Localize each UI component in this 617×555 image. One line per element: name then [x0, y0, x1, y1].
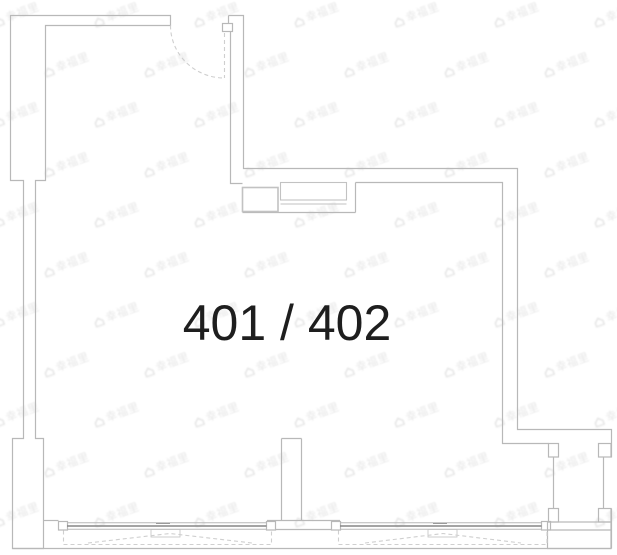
counter-box — [281, 183, 347, 201]
fixtures — [151, 183, 457, 538]
module-tab — [599, 509, 612, 523]
module-tab — [549, 509, 559, 523]
window-post — [332, 522, 341, 531]
window-post — [542, 522, 551, 531]
window-center-mark — [151, 530, 180, 538]
dashed-lines — [64, 26, 548, 545]
bay-opening-left — [88, 534, 252, 544]
window-post — [267, 522, 276, 531]
windows — [67, 523, 542, 530]
module-side-windows — [554, 458, 612, 549]
module-tab — [599, 444, 612, 458]
bay-opening-right — [365, 534, 521, 544]
left-wall — [11, 16, 171, 549]
bay-outline-left — [64, 531, 272, 545]
appliance-box — [243, 188, 279, 212]
floorplan-canvas: 幸福里幸福里幸福里幸福里幸福里幸福里幸福里幸福里幸福里幸福里幸福里幸福里幸福里幸… — [0, 0, 617, 555]
corner-wall-block — [548, 522, 612, 549]
central-pier — [267, 439, 340, 530]
door-swing-arc — [171, 26, 225, 79]
entry-wall-inner-face — [229, 16, 243, 184]
outer-wall-right — [229, 16, 612, 458]
wall-outlines — [11, 16, 612, 549]
door-frame-tab — [223, 24, 233, 32]
room-label: 401 / 402 — [183, 295, 392, 351]
bay-outline-right — [339, 531, 548, 545]
window-post — [59, 522, 68, 531]
module-tab — [549, 444, 559, 458]
floorplan-drawing: 401 / 402 — [0, 0, 617, 555]
